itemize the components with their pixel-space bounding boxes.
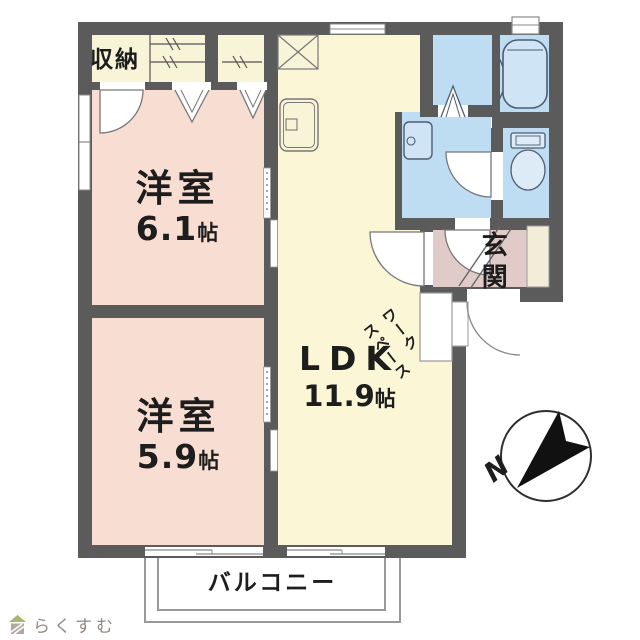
ldk-size-value: 11.9	[303, 379, 375, 413]
closet-fold-opening-1	[172, 82, 211, 90]
logo-house-icon	[8, 614, 27, 635]
bedroom2-balcony-window	[145, 547, 263, 556]
kitchen-faucet	[286, 119, 297, 130]
compass-needle	[517, 411, 590, 488]
front-door-arc	[467, 302, 520, 355]
entrance-label: 玄関	[478, 231, 505, 295]
bedroom2-size-unit: 帖	[198, 449, 220, 473]
floorplan-image: 収納 洋室 6.1帖 洋室 5.9帖 LDK 11.9帖 玄関 スペース ワーク…	[0, 0, 640, 640]
wall-top	[78, 22, 563, 35]
floorplan-drawing	[0, 0, 640, 640]
bedroom1-sliding-door-2	[271, 220, 278, 267]
bathtub-icon	[503, 40, 547, 108]
refrigerator-space-icon	[278, 35, 318, 69]
wall-bath-toilet	[492, 112, 550, 128]
wall-between-bedrooms	[92, 305, 278, 318]
ldk-balcony-window	[287, 547, 385, 556]
logo-roof	[9, 615, 26, 622]
shoe-cabinet	[527, 226, 549, 287]
closet-label: 収納	[90, 48, 140, 72]
laundry-floor	[433, 35, 492, 112]
wall-ldk-laundry	[420, 33, 433, 112]
bedroom2-size: 5.9帖	[92, 440, 265, 475]
toilet-icon	[511, 133, 545, 190]
closet-fold-opening-2	[237, 82, 267, 90]
washbasin-counter	[404, 122, 432, 159]
wall-bottom	[78, 545, 466, 558]
bedroom2-name: 洋室	[92, 398, 265, 437]
bedroom1-name: 洋室	[92, 170, 263, 209]
bedroom1-label: 洋室 6.1帖	[92, 170, 263, 246]
site-logo-text: らくすむ	[33, 612, 117, 637]
washroom-door-opening	[455, 218, 490, 230]
wall-washroom-left	[395, 112, 402, 222]
bedroom1-sliding-door-1	[264, 168, 271, 218]
bedroom2-size-value: 5.9	[137, 437, 198, 476]
wall-right	[549, 22, 563, 302]
closet-door-opening	[100, 82, 145, 90]
bedroom2-sliding-door-2	[271, 430, 278, 471]
toilet-bowl	[511, 150, 545, 190]
site-logo: らくすむ	[8, 612, 117, 637]
washbasin-icon	[404, 122, 432, 159]
ldk-size: 11.9帖	[272, 381, 427, 411]
wall-closet-divider	[205, 33, 218, 82]
balcony-label: バルコニー	[145, 571, 400, 595]
bedroom2-label: 洋室 5.9帖	[92, 398, 265, 474]
bedroom1-size-value: 6.1	[136, 209, 197, 248]
ldk-size-unit: 帖	[375, 387, 396, 411]
bedroom1-size-unit: 帖	[197, 221, 219, 245]
bedroom1-size: 6.1帖	[92, 212, 263, 247]
compass-rose	[501, 411, 591, 501]
kitchen-sink-icon	[280, 99, 318, 151]
toilet-door-opening	[491, 152, 503, 200]
